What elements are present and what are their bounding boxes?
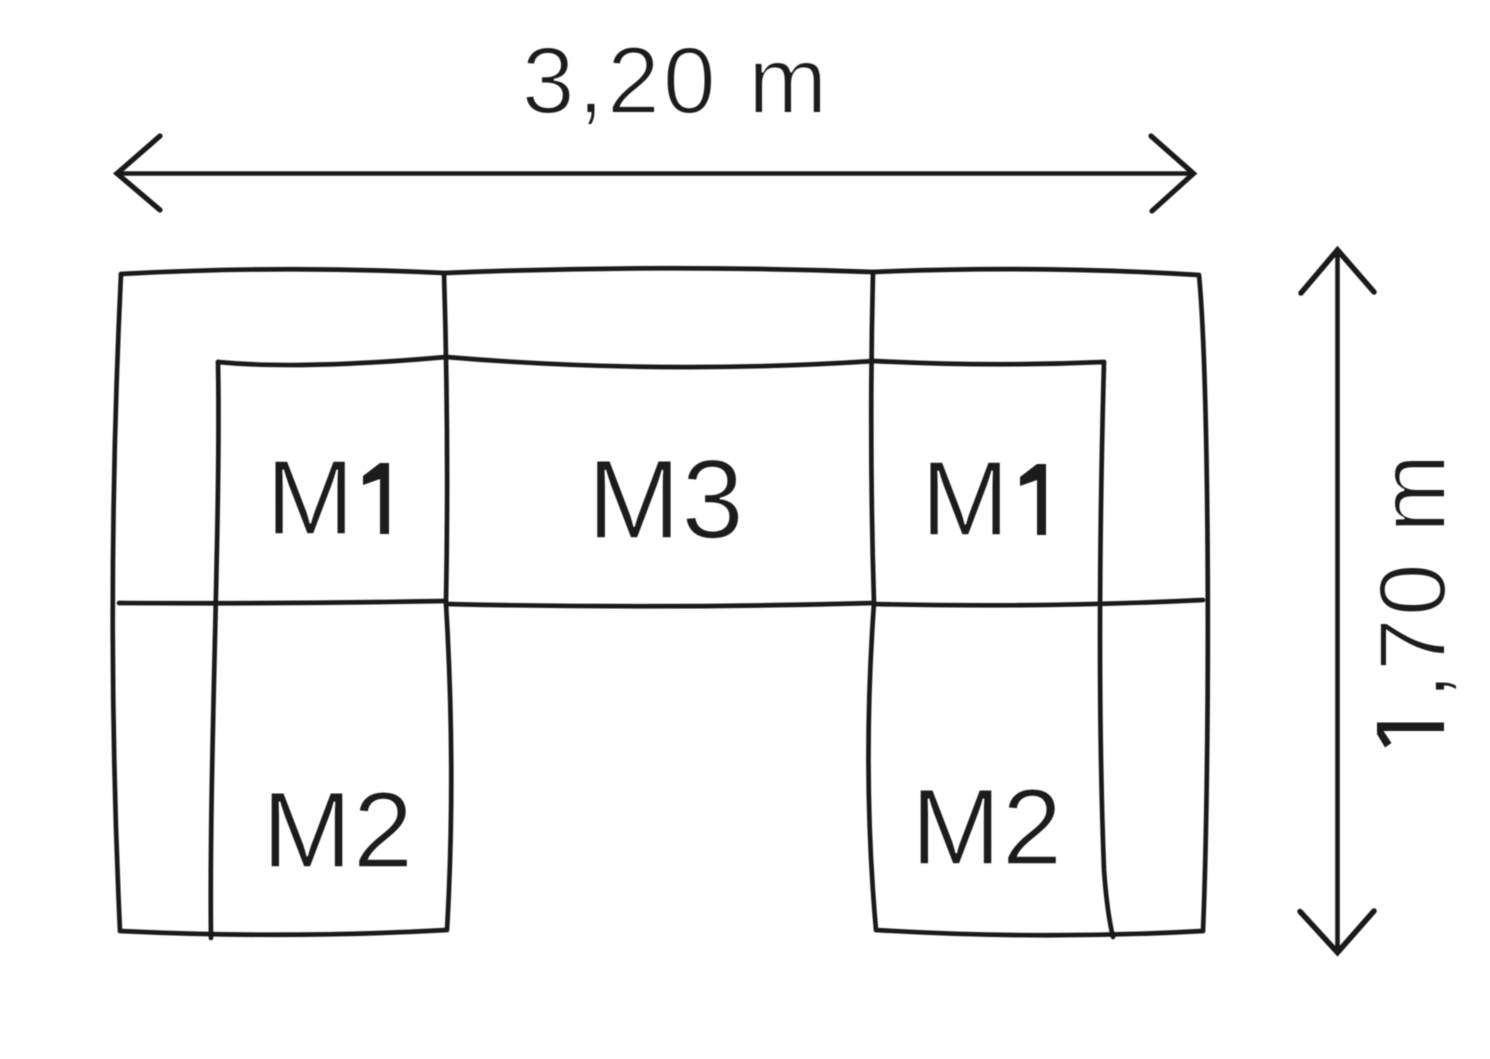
svg-text:M: M	[921, 440, 1009, 558]
svg-text:M2: M2	[262, 769, 414, 890]
svg-text:,70 m: ,70 m	[1360, 452, 1466, 700]
svg-text:M3: M3	[587, 437, 745, 562]
svg-text:M2: M2	[911, 766, 1063, 887]
svg-text:3,20 m: 3,20 m	[522, 28, 830, 134]
svg-text:M: M	[266, 439, 354, 557]
